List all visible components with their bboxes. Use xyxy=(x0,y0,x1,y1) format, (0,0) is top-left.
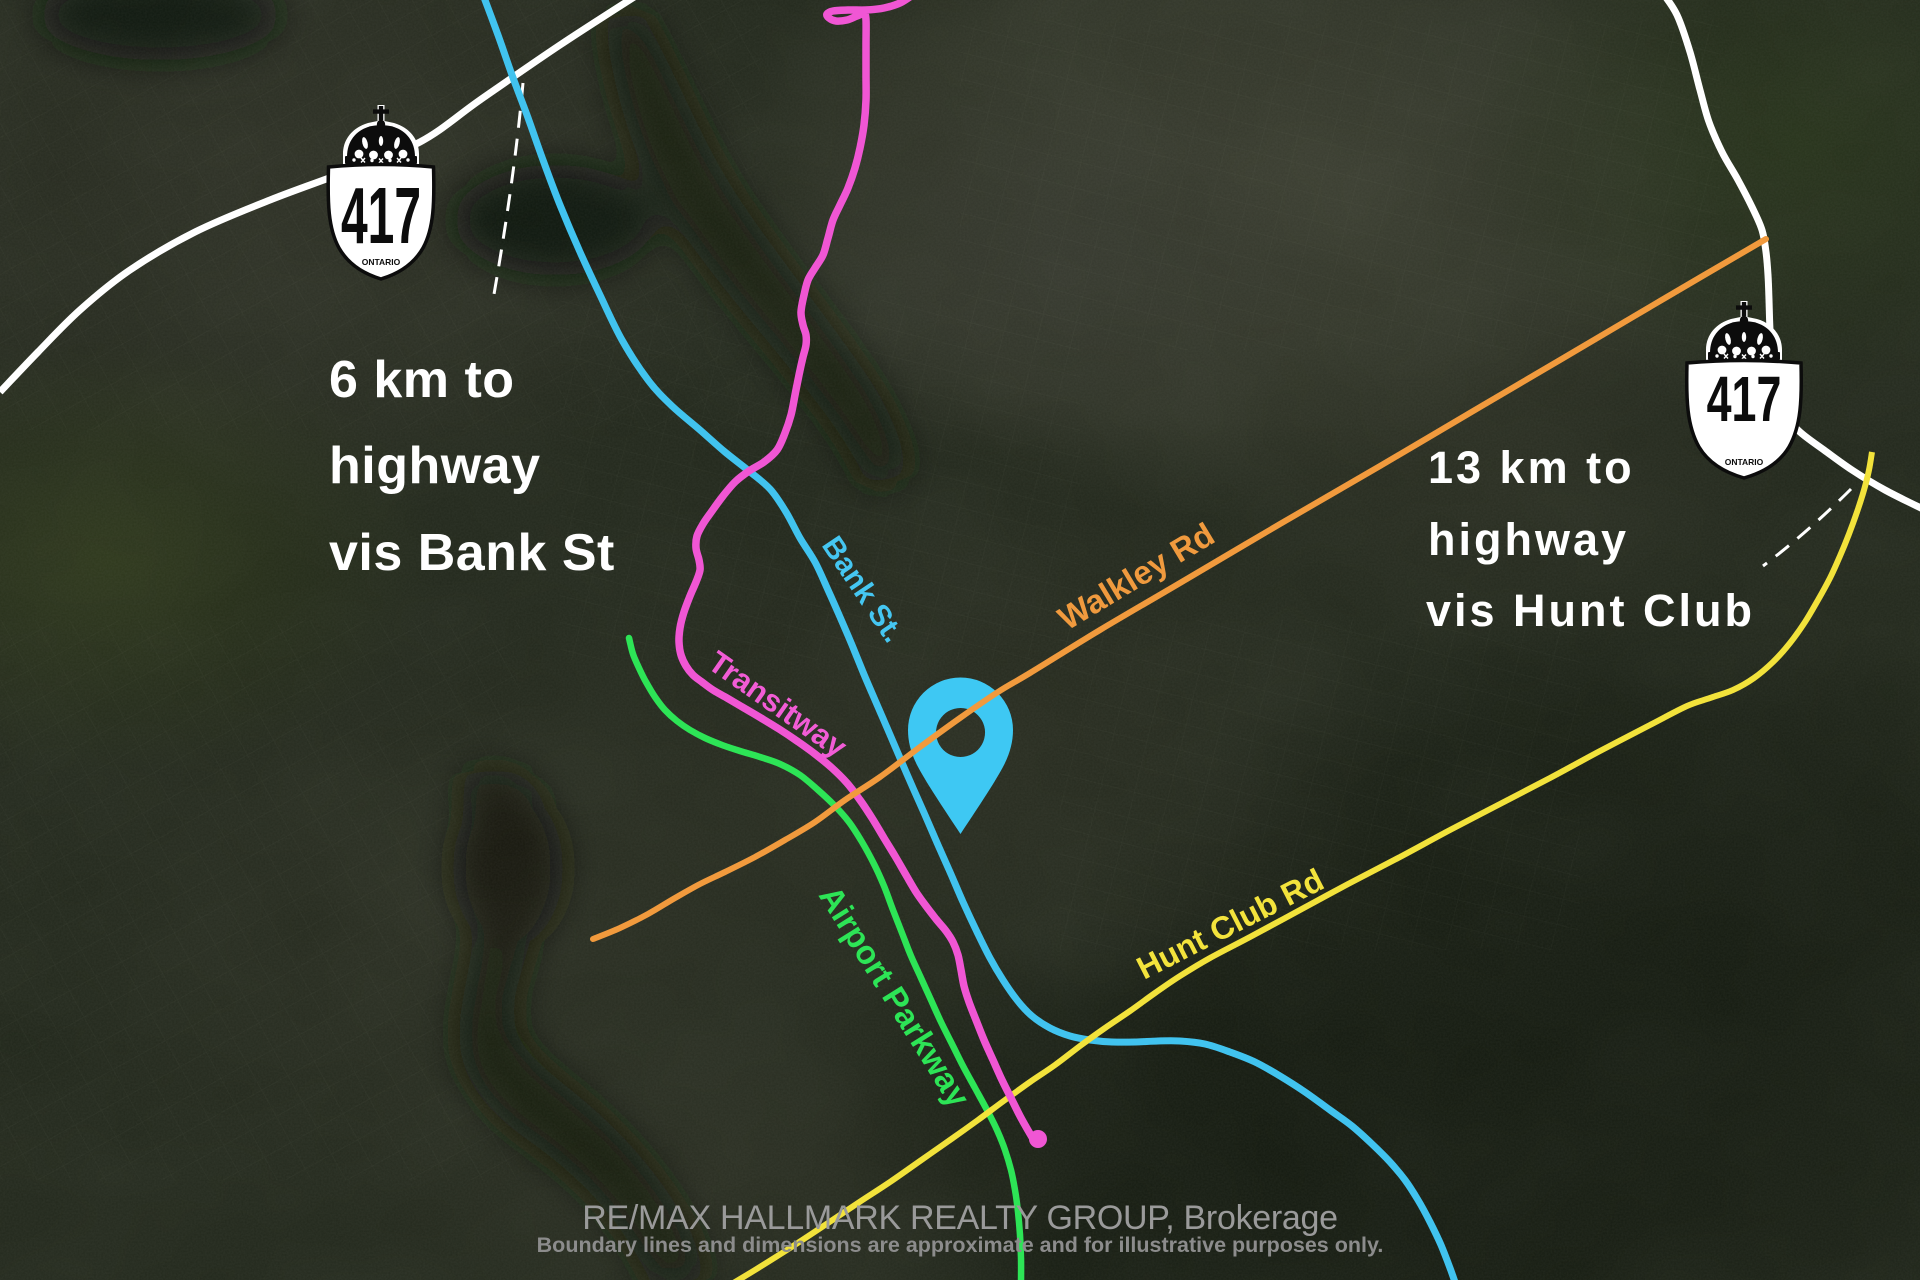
svg-text:13 km to: 13 km to xyxy=(1428,442,1635,493)
svg-text:RE/MAX HALLMARK REALTY GROUP,: RE/MAX HALLMARK REALTY GROUP, Brokerage xyxy=(582,1199,1337,1237)
svg-text:vis Bank St: vis Bank St xyxy=(329,524,615,582)
svg-text:highway: highway xyxy=(329,437,541,495)
svg-text:ONTARIO: ONTARIO xyxy=(1725,457,1764,467)
svg-text:highway: highway xyxy=(1428,514,1629,565)
svg-text:6 km to: 6 km to xyxy=(329,351,515,409)
svg-text:ONTARIO: ONTARIO xyxy=(362,257,401,267)
svg-text:417: 417 xyxy=(341,170,421,260)
svg-text:417: 417 xyxy=(1707,363,1782,435)
svg-text:Boundary lines and dimensions: Boundary lines and dimensions are approx… xyxy=(537,1233,1384,1257)
svg-text:vis Hunt Club: vis Hunt Club xyxy=(1426,585,1755,636)
